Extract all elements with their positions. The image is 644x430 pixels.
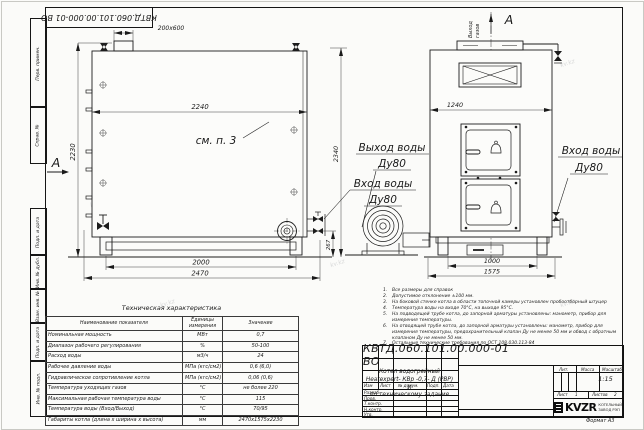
note-item: 6.На отводящей трубе котла, до запорной … — [383, 324, 621, 342]
title-block: Изм Лист № докум. Подп. Дата Разраб. Про… — [362, 345, 624, 418]
scale-value: 1:15 — [589, 375, 622, 383]
dim-side-width: 2240 — [191, 103, 208, 111]
sheet-label: Лист — [557, 392, 568, 397]
role-prov: Пров. — [364, 396, 376, 401]
scale-label: Масштаб — [602, 367, 622, 372]
tech-col-name: Наименование показателя — [46, 317, 183, 331]
water-out-dn: Ду80 — [377, 158, 406, 170]
tech-table-title: Техническая характеристика — [45, 302, 298, 316]
mass-label: Масса — [581, 367, 594, 372]
boiler-drawing: 200x600 2240 2230 2000 2470 267 2340 см.… — [0, 0, 644, 300]
water-in-dn: Ду80 — [368, 194, 397, 206]
col-dokum: № докум. — [398, 383, 419, 388]
sheet-value: 1 — [575, 392, 578, 397]
water-out-label: Выход воды — [359, 142, 426, 154]
col-izm: Изм — [364, 383, 373, 388]
dim-stub-height: 267 — [326, 239, 332, 250]
role-razrab: Разраб. — [364, 390, 380, 395]
gas-out-word1: Выход — [468, 21, 474, 38]
view-direction-arrow — [62, 170, 69, 175]
kvzr-logo-icon — [554, 402, 563, 413]
table-row: Температура воды (Вход/Выход)°С70/95 — [46, 405, 299, 416]
table-row: Рабочее давление водыМПа (кгс/см2)0,6 (6… — [46, 362, 299, 373]
water-in-right-label: Вход воды — [562, 145, 621, 157]
sheets-value: 2 — [614, 392, 617, 397]
dim-duct: 200x600 — [158, 25, 185, 32]
dim-overall-height: 2340 — [332, 146, 340, 162]
tech-characteristics: Техническая характеристика Наименование … — [45, 302, 298, 426]
water-in-label: Вход воды — [354, 178, 413, 190]
blower-fan — [345, 206, 430, 255]
gas-out-word2: газов — [475, 24, 481, 38]
tech-col-unit: Единицы измерения — [183, 317, 223, 331]
table-row: Гидравлическое сопротивление котлаМПа (к… — [46, 373, 299, 384]
table-row: Максимальная рабочая температура воды°С1… — [46, 394, 299, 405]
doc-number: КВТД.060.101.00.000-01 ВО — [363, 346, 526, 363]
table-row: Температура уходящих газов°Сне более 220 — [46, 383, 299, 394]
col-podp: Подп. — [427, 383, 440, 388]
section-letter-a-right: А — [504, 12, 514, 27]
role-tkontr: Т.контр. — [364, 401, 382, 406]
role-utv: Утв. — [364, 412, 373, 417]
sheets-label: Листов — [592, 392, 608, 397]
table-row: Расход водым3/ч24 — [46, 352, 299, 363]
table-row: Габариты котла (длина х ширина х высота)… — [46, 415, 299, 426]
inlet-flange-icon — [552, 212, 566, 235]
tech-table: Наименование показателя Единицы измерени… — [45, 316, 299, 426]
tech-col-value: Значение — [223, 317, 299, 331]
dim-side-height: 2230 — [69, 143, 77, 160]
water-in-right-dn: Ду80 — [574, 162, 603, 174]
col-data: Дата — [443, 383, 454, 388]
table-row: Номинальная мощностьМВт0,7 — [46, 331, 299, 342]
table-row: Диапазон рабочего регулирования%50-100 — [46, 341, 299, 352]
drawing-notes: 1.Все размеры для справок 2.Допустимое о… — [383, 288, 621, 347]
front-view — [422, 12, 566, 262]
format-label: Формат А3 — [586, 418, 614, 424]
kvzr-company: КОТЕЛЬНЫЙ ЗАВОД РЭП — [598, 403, 622, 412]
dim-front-width: 1240 — [447, 101, 463, 109]
kvzr-logo-text: KVZR — [565, 401, 596, 414]
dim-base-span: 2000 — [192, 259, 209, 267]
col-list: Лист — [380, 383, 391, 388]
dim-front-base: 1000 — [484, 257, 500, 265]
note-item: 5.На подводящей трубе котла, до запорной… — [383, 312, 621, 324]
drawing-sheet: kv.kz kv.kz kv.kz kv.kz kv.kz kv.kz kv.k… — [0, 0, 644, 430]
side-view — [68, 41, 332, 257]
inlet-valves-icon — [307, 212, 325, 236]
see-note-label: см. п. 3 — [196, 135, 237, 147]
dim-front-overall: 1575 — [484, 268, 500, 276]
dim-overall-length: 2470 — [191, 270, 208, 278]
kvzr-logo: KVZR КОТЕЛЬНЫЙ ЗАВОД РЭП — [554, 399, 622, 417]
lit-label: Лит. — [559, 367, 569, 372]
section-letter-a-left: А — [51, 155, 61, 170]
role-nkontr: Н.контр. — [364, 407, 383, 412]
